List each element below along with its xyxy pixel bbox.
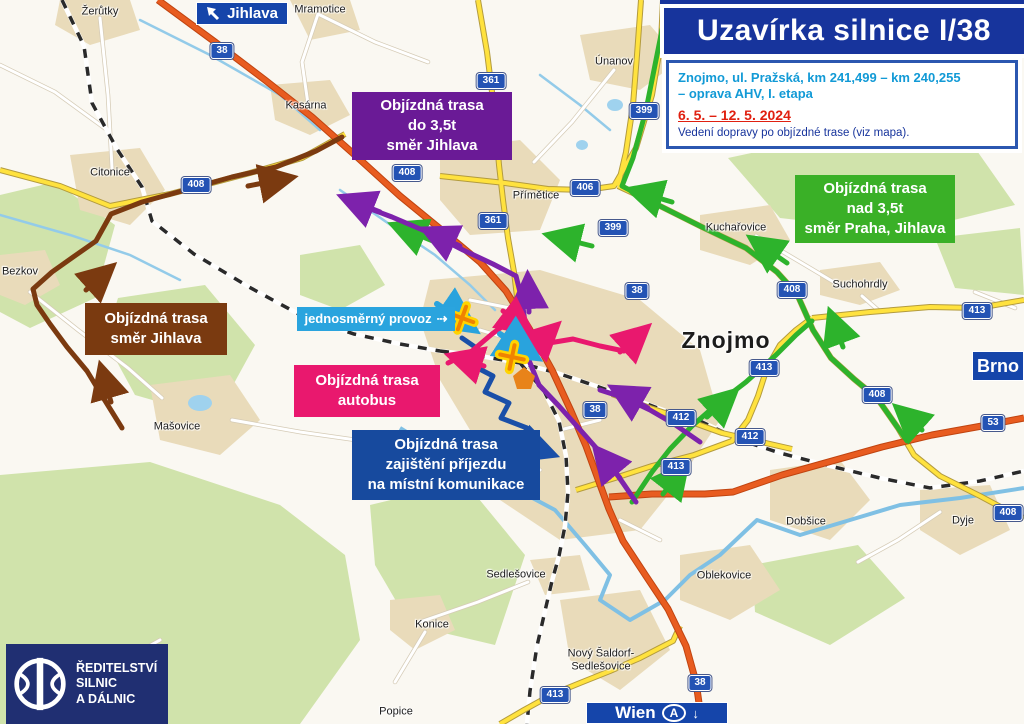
road-badge: 408 <box>778 282 807 298</box>
town-label: Přímětice <box>513 190 559 203</box>
austria-oval-icon: A <box>662 704 687 722</box>
road-badge: 38 <box>688 675 711 691</box>
sign-wien-label: Wien <box>615 703 655 723</box>
town-label: Citonice <box>90 167 130 180</box>
oneway-arrow-icon: ⇢ <box>437 310 448 328</box>
town-label: Kuchařovice <box>706 222 767 235</box>
town-label: Popice <box>379 706 413 719</box>
legend-detour-local-access: Objízdná trasa zajištění příjezdu na mís… <box>352 430 540 500</box>
closure-location-line2: – oprava AHV, I. etapa <box>678 86 1006 102</box>
top-strip <box>660 0 1024 5</box>
road-badge: 53 <box>981 415 1004 431</box>
closure-dates: 6. 5. – 12. 5. 2024 <box>678 107 1006 123</box>
town-label: Nový Šaldorf- Sedlešovice <box>568 647 635 672</box>
town-label: Mašovice <box>154 421 200 434</box>
legend-detour-jihlava: Objízdná trasa směr Jihlava <box>85 303 227 355</box>
road-badge: 413 <box>541 687 570 703</box>
town-label: Oblekovice <box>697 570 751 583</box>
sign-brno-label: Brno <box>977 356 1019 377</box>
legend-oneway-traffic: jednosměrný provoz ⇢ <box>297 307 455 331</box>
town-label: Dobšice <box>786 516 826 529</box>
detour-map: ŽerůtkyMramoticeÚnanovKasárnaCitoniceBez… <box>0 0 1024 724</box>
road-badge: 361 <box>477 73 506 89</box>
road-badge: 38 <box>625 283 648 299</box>
sign-wien: Wien A ↓ <box>586 702 728 724</box>
page-title: Uzavírka silnice I/38 <box>664 8 1024 54</box>
legend-detour-over-3-5t: Objízdná trasa nad 3,5t směr Praha, Jihl… <box>795 175 955 243</box>
town-label: Mramotice <box>294 4 345 17</box>
road-badge: 399 <box>630 103 659 119</box>
road-badge: 412 <box>667 410 696 426</box>
closure-info-box: Znojmo, ul. Pražská, km 241,499 – km 240… <box>666 60 1018 149</box>
town-label: Únanov <box>595 56 633 69</box>
legend-detour-under-3-5t: Objízdná trasa do 3,5t směr Jihlava <box>352 92 512 160</box>
road-badge: 413 <box>662 459 691 475</box>
town-label: Sedlešovice <box>486 569 545 582</box>
road-badge: 361 <box>479 213 508 229</box>
down-arrow-icon: ↓ <box>692 706 699 721</box>
road-badge: 413 <box>963 303 992 319</box>
closure-note: Vedení dopravy po objízdné trase (viz ma… <box>678 127 1006 139</box>
town-label: Suchohrdly <box>832 279 887 292</box>
sign-jihlava: Jihlava <box>196 2 288 25</box>
road-badge: 38 <box>583 402 606 418</box>
oneway-label: jednosměrný provoz <box>304 310 431 328</box>
town-label: Konice <box>415 619 449 632</box>
road-badge: 408 <box>182 177 211 193</box>
road-badge: 406 <box>571 180 600 196</box>
road-badge: 408 <box>994 505 1023 521</box>
sign-brno: Brno <box>972 351 1024 381</box>
highway-interchange-icon <box>12 656 68 712</box>
town-label: Dyje <box>952 515 974 528</box>
road-badge: 408 <box>393 165 422 181</box>
closure-location-line1: Znojmo, ul. Pražská, km 241,499 – km 240… <box>678 70 1006 86</box>
rsd-logo: ŘEDITELSTVÍ SILNIC A DÁLNIC <box>6 644 168 724</box>
road-badge: 399 <box>599 220 628 236</box>
town-label: Znojmo <box>681 327 770 353</box>
town-label: Žerůtky <box>82 6 119 19</box>
road-badge: 412 <box>736 429 765 445</box>
direction-arrow-icon <box>206 6 221 21</box>
road-badge: 413 <box>750 360 779 376</box>
legend-detour-bus: Objízdná trasa autobus <box>294 365 440 417</box>
road-badge: 38 <box>210 43 233 59</box>
road-badge: 408 <box>863 387 892 403</box>
rsd-logo-text: ŘEDITELSTVÍ SILNIC A DÁLNIC <box>76 661 157 708</box>
sign-jihlava-label: Jihlava <box>227 5 278 22</box>
town-label: Bezkov <box>2 266 38 279</box>
town-label: Kasárna <box>286 100 327 113</box>
